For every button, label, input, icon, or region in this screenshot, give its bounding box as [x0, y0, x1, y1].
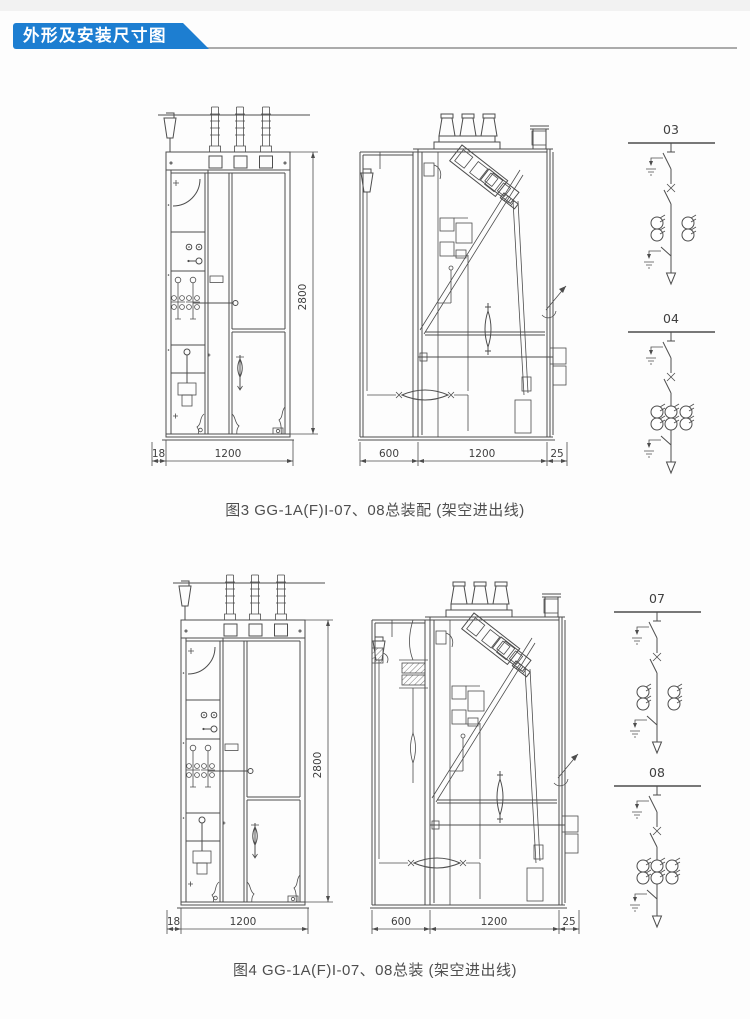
- dim-depth-label: 1200: [481, 916, 508, 928]
- dim-height-label: 2800: [312, 752, 324, 779]
- figure3-schematic-03: 03: [612, 112, 732, 288]
- cabinet-front-drawing: [152, 107, 318, 466]
- figure4-schematic-08: 08: [598, 755, 718, 931]
- dim-offset-label: 18: [152, 448, 165, 460]
- one-line-diagram: [614, 612, 701, 753]
- dim-rear-label: 25: [562, 916, 575, 928]
- dim-rear-label: 25: [550, 448, 563, 460]
- scheme-number-label: 08: [649, 765, 665, 780]
- dim-width-label: 1200: [215, 448, 242, 460]
- catalog-page: 外形及安装尺寸图: [0, 0, 750, 1019]
- dim-offset-label: 18: [167, 916, 180, 928]
- figure4-front-view: 18 1200 2800: [155, 573, 340, 938]
- figure3-schematic-04: 04: [612, 301, 732, 477]
- one-line-diagram: [628, 143, 715, 284]
- scheme-number-label: 03: [663, 122, 679, 137]
- figure3-side-view: 600 1200 25: [350, 105, 590, 470]
- cabinet-front-drawing: [167, 575, 333, 934]
- dim-front-label: 600: [379, 448, 399, 460]
- side-view-extra-gear: [372, 620, 428, 783]
- header-divider-line: [158, 47, 737, 49]
- section-header-banner: 外形及安装尺寸图: [13, 23, 209, 49]
- one-line-diagram: [614, 786, 701, 927]
- figure-caption: 图4 GG-1A(F)I-07、08总装 (架空进出线): [0, 959, 750, 980]
- dim-front-label: 600: [391, 916, 411, 928]
- dim-width-label: 1200: [230, 916, 257, 928]
- dim-height-label: 2800: [297, 284, 309, 311]
- cabinet-side-drawing: [370, 582, 579, 934]
- page-top-strip: [0, 0, 750, 11]
- figure4-schematic-07: 07: [598, 581, 718, 757]
- page-title: 外形及安装尺寸图: [13, 23, 209, 49]
- dim-depth-label: 1200: [469, 448, 496, 460]
- figure-caption: 图3 GG-1A(F)I-07、08总装配 (架空进出线): [0, 499, 750, 520]
- scheme-number-label: 04: [663, 311, 679, 326]
- one-line-diagram: [628, 332, 715, 473]
- figure3-front-view: 18 1200 2800: [140, 105, 325, 470]
- figure4-side-view: 600 1200 25: [362, 573, 602, 938]
- cabinet-side-drawing: [358, 114, 567, 466]
- scheme-number-label: 07: [649, 591, 665, 606]
